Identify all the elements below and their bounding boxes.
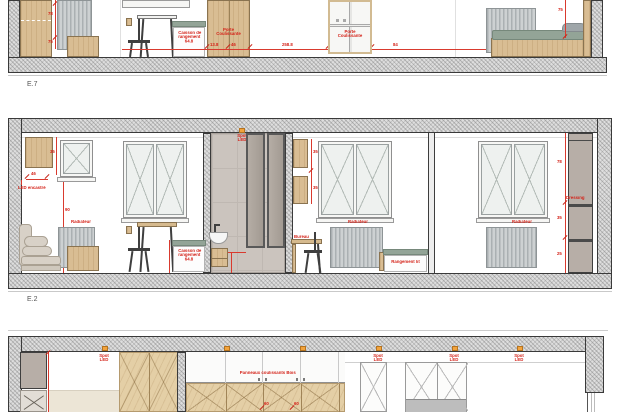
b-door-right [587,393,603,412]
closet-seam [300,352,301,383]
table-leg [140,19,145,57]
e7-storage-box [67,36,99,57]
chair-leg [145,251,150,272]
door-leaf-pattern [120,353,149,411]
b-top-line [8,330,608,331]
e7-dim-h2: 46 [231,43,236,47]
transom [330,24,370,27]
closet-seam [301,384,302,412]
e7-floor-shadow-line [8,75,607,76]
e7-dim-v3: 75 [558,8,563,12]
sink-faucet-spout [214,224,220,226]
dressing-divider [569,204,592,207]
closet-seam [263,384,264,412]
b-tall-panel [360,362,387,412]
e2-floor-wall [8,273,612,289]
closet-panel-pattern [301,384,338,411]
e2-floor-shadow-line [8,291,612,292]
ceiling-spot-marker [376,346,382,351]
dressing-shelf-line [569,140,592,141]
bedroom-shelf-dim [311,139,312,204]
closet-panel-pattern [188,384,225,411]
e2-right-wall [597,118,612,289]
e2-radiator-bedroom [330,227,383,268]
e2-section-label: E.2 [27,296,38,303]
b-partition [177,352,186,412]
e2-radiateur-label-2: Radiateur [348,220,368,224]
b-double-panel [405,362,467,412]
elevation-drawing-canvas: 78 75 Caisson derangement64.8 PorteCouli… [0,0,618,412]
e2-dim-window-floor-label: 90 [65,208,70,212]
sofa-cushion [22,246,52,256]
e2-partition-3 [428,133,435,273]
dressing-dim3: 25 [557,252,562,256]
e2-window-living [123,141,187,218]
dressing-label: Dressing [566,196,584,200]
bed-frame [491,38,587,57]
window-sash [356,144,389,215]
chair-leg [145,43,149,57]
ceiling-spot-marker [224,346,230,351]
closet-handle [265,378,267,381]
e7-dim-h4: 84 [393,43,398,47]
e7-porte-label-2: PorteCoulissante [336,30,365,39]
window-sash [156,144,184,215]
dressing-dim2: 35 [557,216,562,220]
b-dim-2: 60 [294,402,299,406]
e2-window-right [478,141,548,218]
closet-seam [226,384,227,412]
dressing-dim1: 78 [557,160,562,164]
door-leaf-pattern [149,353,178,411]
ceiling-spot-marker [517,346,523,351]
door-frame-line [591,393,592,412]
panel-base [406,399,466,412]
e2-dim-cab-h-label: 35 [50,150,55,154]
shelf-object [343,19,346,22]
e2-ceiling-trim [22,137,597,138]
e7-glazed-door [328,0,372,54]
chair-backrest [126,226,132,234]
door-center-line [149,353,150,411]
mullion [349,2,352,52]
e2-storage-box [67,246,99,271]
e2-window-bedroom [318,141,392,218]
dressing-divider [569,239,592,242]
shower-glass-panel [246,133,265,248]
e2-small-window [60,140,93,177]
panneaux-label: Panneaux coulissants Bois [240,371,290,375]
e2-ceiling-wall [8,118,612,133]
e7-porte-label: PorteCoulissante [214,28,242,37]
shower-glass-panel [267,133,285,248]
b-chevron-object [20,390,47,412]
bench-label: Rangement lit [391,260,421,264]
e2-radiateur-label-1: Radiateur [71,220,91,224]
desk-leg-panel [292,244,296,273]
e2-led-label: LED encastré [18,186,46,190]
e7-dim-v2: 75 [48,40,53,44]
e7-right-wall [591,0,603,58]
b-closet-lower [186,383,345,412]
e7-section-label: E.7 [27,81,38,88]
chair-leg [129,251,134,272]
e2-dim-cab-v [56,137,57,175]
closet-seam [225,352,226,383]
sofa-seat [21,256,61,265]
shelf-object [336,19,339,22]
desk-chair-leg [317,253,322,273]
closet-handle [258,378,260,381]
e7-wardrobe-panel [20,0,52,57]
e2-caisson-label: Caisson derangement64.8 [178,249,200,262]
wardrobe-joint-line [21,20,51,21]
spot-led-label: SpotLED [98,354,110,363]
bathroom-dim-v [231,252,232,273]
b-dim-1: 60 [264,402,269,406]
e2-radiateur-label-3: Radiateur [512,220,532,224]
e7-left-wall [8,0,20,58]
e2-radiator-right [486,227,537,268]
e7-floor-wall [8,57,607,73]
closet-handle [303,378,305,381]
b-wood-door [119,352,178,412]
closet-handle [296,378,298,381]
b-ceiling-wall [8,336,604,352]
bedroom-shelf-box [293,176,308,204]
door-frame-line [594,393,595,412]
e7-dim-v1: 78 [48,12,53,16]
e7-caisson-label: Caisson derangement64.8 [178,31,200,44]
chair-leg [129,43,133,57]
closet-seam [339,384,340,412]
e7-dim-line-left [55,0,56,49]
desk-chair-leg [305,253,310,273]
window-sash [321,144,354,215]
b-floor-band [49,390,119,412]
closet-panel-pattern [226,384,262,411]
ceiling-spot-marker [452,346,458,351]
ceiling-spot-marker [300,346,306,351]
sofa-base [21,265,61,271]
e7-dim-h3: 258.8 [282,43,293,47]
desk-chair-back [314,232,316,252]
window-sash [481,144,512,215]
dressing-cabinet [568,133,593,273]
chair-backrest [126,18,132,26]
e2-wall-cabinet [25,137,53,168]
bedroom-shelf-box [293,139,308,168]
e7-dim-h1: 13.8 [210,43,218,47]
bed-headboard-panel [583,0,591,57]
led-leader-line [21,180,22,185]
closet-panel-pattern [263,384,300,411]
drawer-divider [212,258,227,259]
closet-seam [338,352,339,383]
window-sash [126,144,154,215]
e7-window-sill-top [122,0,190,8]
closet-seam [262,352,263,383]
b-left-cabinet [20,352,47,389]
window-sash [514,144,545,215]
e7-wall-seam [120,0,121,57]
b-right-wall [585,336,604,393]
ceiling-spot-marker [102,346,108,351]
e2-dim-cab-w-label: 46 [31,172,36,176]
e2-caisson-dim [169,240,170,273]
window-sash [63,143,90,174]
bathroom-drawers [211,248,228,267]
e7-dim-line-bed [565,0,566,38]
ceiling-spot-marker [239,128,245,133]
